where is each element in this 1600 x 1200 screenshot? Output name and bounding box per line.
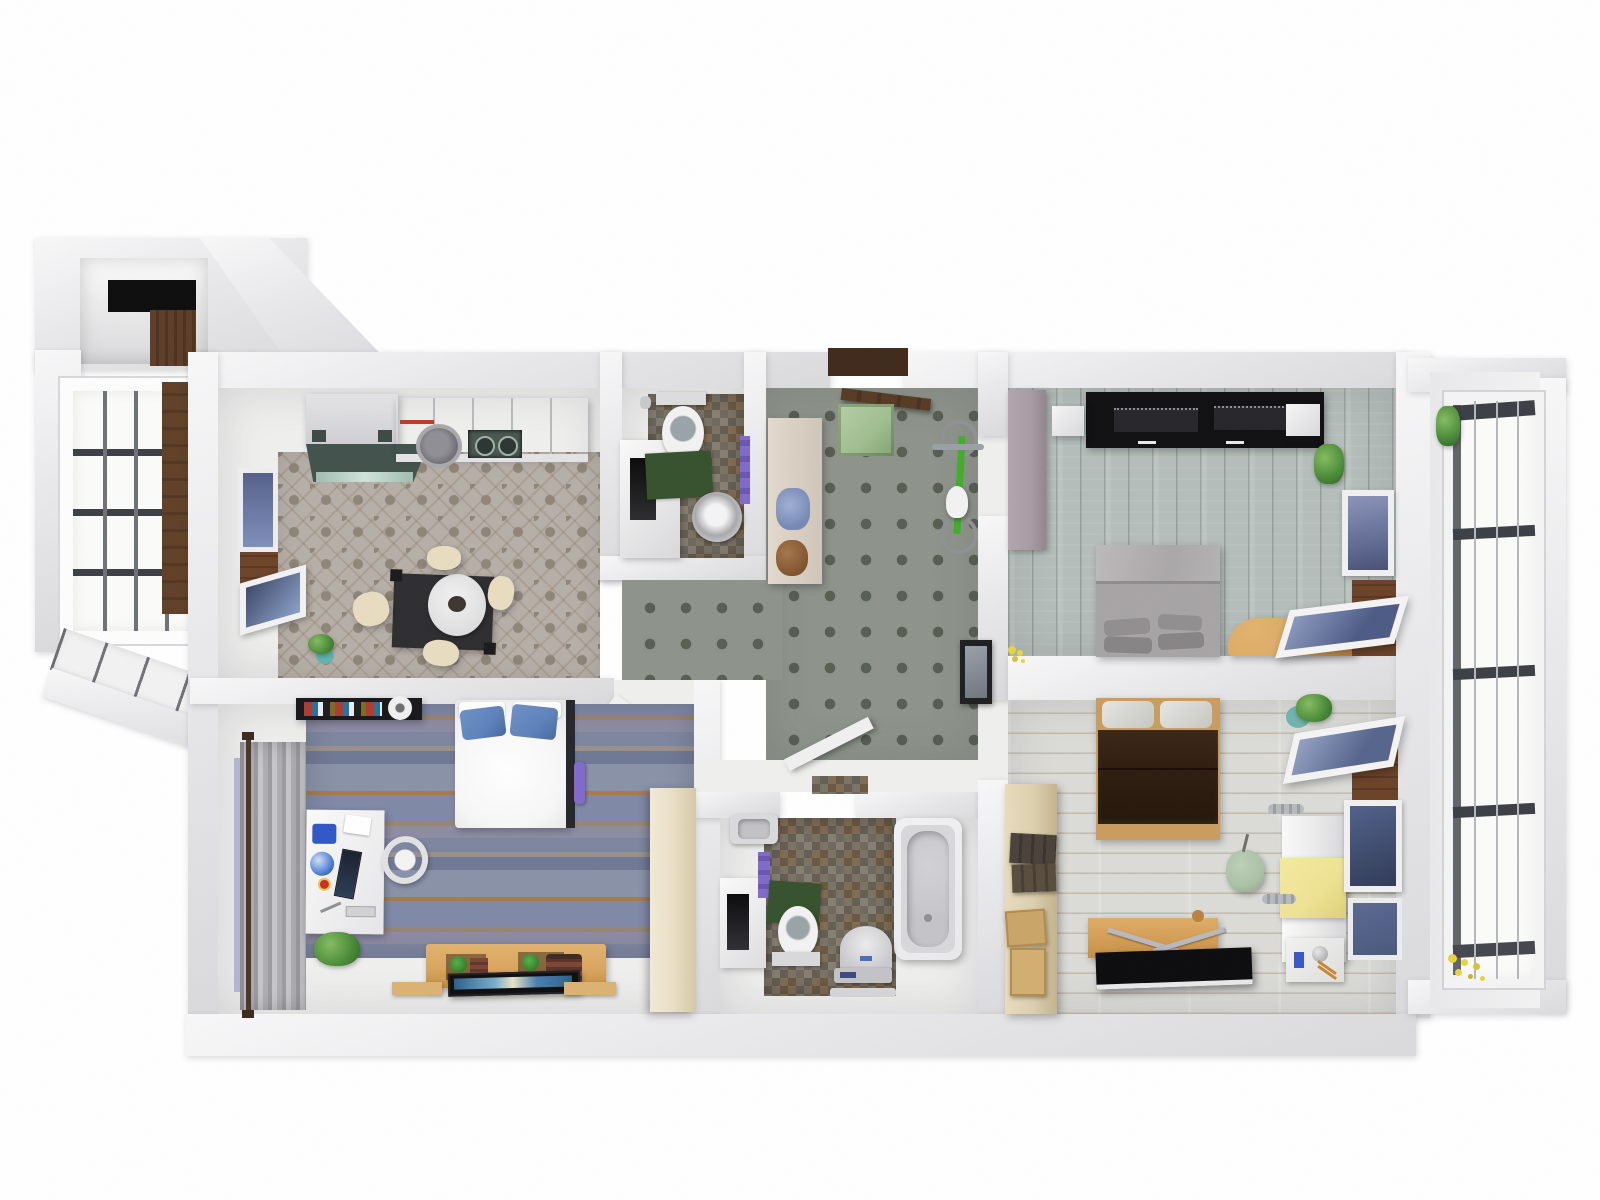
kitchen-wc-wall bbox=[600, 352, 622, 582]
kitchen-plant bbox=[308, 634, 334, 654]
bedroom-bl-plant bbox=[314, 932, 360, 966]
pillow-blue bbox=[509, 704, 558, 741]
burner bbox=[475, 436, 495, 456]
dining-chair bbox=[427, 546, 461, 570]
small-desk bbox=[1286, 938, 1344, 982]
desk-globe-lamp bbox=[310, 852, 334, 876]
wc-bath-mat bbox=[645, 450, 713, 499]
table-corner bbox=[390, 569, 402, 581]
window-mullions-v bbox=[134, 391, 138, 631]
bidet bbox=[840, 926, 892, 972]
bedroom2-plant bbox=[1296, 694, 1332, 722]
bicycle-saddle bbox=[946, 486, 968, 518]
doormat-green bbox=[838, 404, 894, 456]
window-bar-top bbox=[1453, 400, 1536, 421]
hall-bedrooms-wall-a bbox=[978, 352, 1008, 436]
radiator bbox=[1268, 804, 1304, 814]
tub-drain bbox=[924, 914, 932, 922]
desk-blue-box bbox=[312, 824, 336, 844]
yellow-panel bbox=[1280, 858, 1346, 918]
toilet-base bbox=[772, 952, 820, 966]
bedroom1-plant bbox=[1314, 444, 1344, 484]
wardrobe-handle bbox=[1138, 441, 1156, 444]
kitchen-side-window bbox=[238, 468, 278, 552]
wardrobe-handle bbox=[1226, 441, 1244, 444]
cooktop bbox=[468, 430, 522, 458]
bicycle-handlebar bbox=[932, 444, 984, 450]
kitchen-tall-cabinet bbox=[306, 394, 398, 446]
pillow-blue bbox=[459, 705, 506, 740]
bidet-faucet bbox=[860, 956, 872, 961]
interior-wood-panel bbox=[162, 382, 190, 614]
window-mullions-v bbox=[103, 391, 107, 631]
teddy-bear bbox=[776, 540, 808, 576]
shelf-towels-blue bbox=[776, 488, 810, 530]
table-corner bbox=[484, 642, 496, 654]
black-desk-panel bbox=[1095, 947, 1252, 989]
tub-basin bbox=[907, 831, 949, 947]
pillow-gray bbox=[1158, 632, 1205, 650]
hall-carpet-west bbox=[622, 580, 782, 680]
cardboard-box bbox=[1010, 948, 1046, 996]
washing-machine-door bbox=[416, 424, 462, 468]
desk-monitor bbox=[334, 849, 362, 900]
pillow-gray bbox=[1103, 617, 1150, 636]
hood-glass bbox=[316, 472, 414, 482]
washer-red-knob bbox=[400, 420, 434, 424]
window-bar bbox=[1453, 665, 1535, 680]
curtain-rod-cap bbox=[242, 732, 254, 740]
cardboard-box bbox=[1005, 909, 1047, 948]
bathroom-top-wall-b bbox=[856, 792, 994, 818]
black-top-cabinet bbox=[108, 280, 196, 312]
plant-green-small bbox=[522, 954, 539, 971]
office-desk-white bbox=[305, 810, 384, 935]
double-bed-white bbox=[455, 700, 570, 828]
bathtub bbox=[894, 818, 962, 960]
flat-tv-screen bbox=[448, 970, 581, 996]
window-frame-left-edge bbox=[1453, 405, 1461, 975]
pillow-white bbox=[1160, 701, 1212, 728]
curtain-rod-cap bbox=[242, 1010, 254, 1018]
bathroom-toilet bbox=[778, 906, 818, 958]
storage-crates-dark bbox=[1009, 833, 1057, 865]
bathroom-scale-shadow-line bbox=[830, 988, 896, 997]
wc-pedestal-sink bbox=[692, 492, 742, 542]
desk-keyboard bbox=[346, 906, 376, 917]
burner bbox=[498, 436, 518, 456]
pillow-white bbox=[1102, 701, 1154, 728]
duvet-brown bbox=[1098, 730, 1218, 824]
bottom-outer-wall bbox=[186, 1014, 1416, 1056]
desk-orange-sticks bbox=[1317, 960, 1337, 975]
tv-image bbox=[454, 975, 572, 989]
speaker-box-white bbox=[1286, 404, 1320, 436]
mauve-cabinet bbox=[1008, 390, 1046, 550]
bedroom1-side-window bbox=[1342, 490, 1394, 576]
window-mullion-v bbox=[1496, 401, 1498, 979]
window-mullion-v bbox=[1474, 401, 1476, 979]
sink-basin bbox=[738, 819, 770, 839]
bathroom-niche-opening bbox=[727, 894, 749, 950]
window-bar-bottom bbox=[1453, 941, 1536, 958]
speaker-box-white bbox=[1052, 406, 1084, 436]
double-bed-gray bbox=[1096, 545, 1220, 657]
book-spines bbox=[304, 702, 382, 716]
window-mullion-v bbox=[1517, 401, 1519, 979]
pillow-gray bbox=[1158, 614, 1203, 631]
wc-towel-purple bbox=[740, 436, 750, 504]
bathroom-corner-sink bbox=[730, 814, 778, 844]
rug-strip-oak bbox=[392, 982, 442, 995]
living-hall-wall bbox=[694, 678, 720, 1018]
wc-cistern bbox=[656, 392, 706, 405]
wc-bottom-wall bbox=[600, 556, 766, 580]
wall-book-shelf bbox=[296, 698, 422, 720]
desk-silver-ball bbox=[1312, 946, 1328, 962]
pillow-gray bbox=[1104, 636, 1153, 654]
rug-strip-oak bbox=[564, 982, 616, 995]
bedroom2-window-dark-blue bbox=[1348, 898, 1402, 960]
desk-pen bbox=[320, 902, 341, 914]
bed-head-sheet bbox=[1096, 545, 1220, 581]
mirror-glass bbox=[965, 646, 987, 698]
hall-bedrooms-wall-c bbox=[978, 780, 1008, 1018]
desk-red-button bbox=[318, 878, 331, 891]
bathroom-scale bbox=[834, 968, 892, 983]
entry-door-frame bbox=[828, 348, 908, 376]
storage-crates-dark bbox=[1012, 863, 1057, 893]
bag-purple bbox=[574, 762, 585, 804]
yellow-flowers bbox=[1008, 646, 1016, 654]
top-wall-left bbox=[190, 352, 830, 388]
loggia-grid-window bbox=[1444, 392, 1544, 988]
radiator bbox=[1262, 894, 1296, 904]
window-bar bbox=[1453, 803, 1535, 818]
curtain-rod bbox=[246, 736, 251, 1014]
wardrobe-recess bbox=[1114, 408, 1198, 432]
loggia-flowers-bottom bbox=[1448, 954, 1457, 963]
cabinet-foot bbox=[378, 430, 392, 442]
apartment-floorplan-render bbox=[0, 0, 1600, 1200]
loggia-plant-top bbox=[1436, 406, 1460, 446]
desk-knob bbox=[1192, 910, 1204, 922]
wc-brush bbox=[640, 396, 651, 409]
hall-wall-mirror bbox=[960, 640, 992, 704]
pouf-sage bbox=[1226, 850, 1264, 892]
bedrooms-divider-wall bbox=[1008, 656, 1410, 700]
table-plate bbox=[448, 596, 466, 612]
plant-green-small bbox=[450, 956, 467, 973]
paper-roll bbox=[388, 696, 412, 720]
scale-display bbox=[840, 972, 856, 978]
cabinet-foot bbox=[312, 430, 326, 442]
desk-blue-item bbox=[1294, 952, 1304, 968]
bathroom-door-threshold bbox=[812, 776, 868, 794]
hall-open-shelf bbox=[768, 418, 822, 584]
double-bed-brown-frame bbox=[1096, 698, 1220, 840]
window-bar bbox=[1453, 525, 1535, 540]
desk-papers bbox=[343, 814, 371, 836]
duvet-fold-line bbox=[1098, 768, 1218, 770]
bedroom2-window-dark-blue bbox=[1344, 800, 1402, 892]
bed-fold bbox=[1096, 581, 1220, 584]
tall-wardrobe-beige bbox=[650, 788, 696, 1012]
